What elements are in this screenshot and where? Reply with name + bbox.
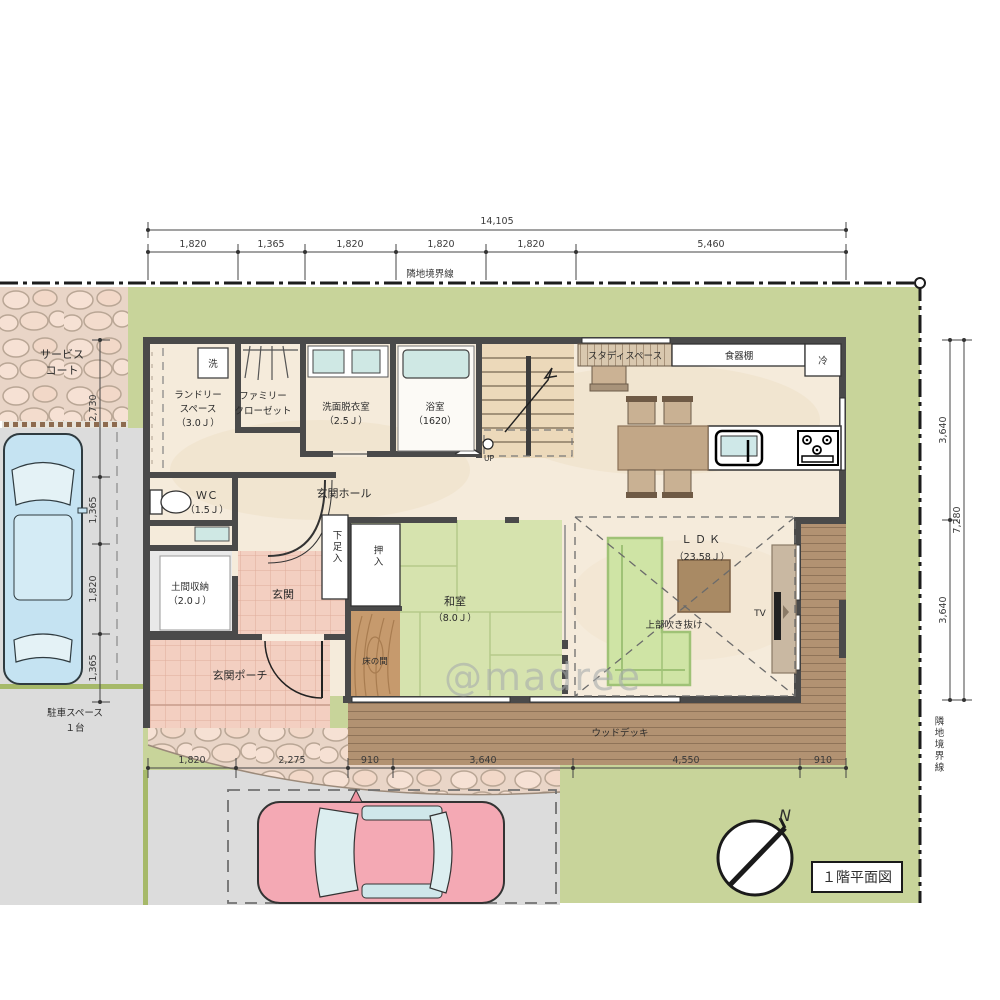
label-wc-1: ＷＣ bbox=[196, 489, 218, 502]
kitchen-sink bbox=[716, 431, 762, 465]
dim-top-total: 14,105 bbox=[480, 216, 513, 227]
label-parking-1: 駐車スペース bbox=[47, 707, 103, 719]
label-washroom-2: （2.5Ｊ） bbox=[324, 415, 368, 427]
wall-north bbox=[143, 337, 846, 344]
label-oshiire: 押入 bbox=[372, 544, 384, 568]
label-washitsu-2: （8.0Ｊ） bbox=[433, 612, 477, 624]
label-tokonoma: 床の間 bbox=[362, 656, 388, 667]
car-blue bbox=[4, 434, 87, 684]
deck-wall-stub bbox=[839, 600, 846, 658]
floor-plan-drawing: 隣地境界線 隣地境界線 14,105 1,820 1,365 1,820 1,8… bbox=[0, 0, 1000, 1000]
wall-porch-top bbox=[143, 634, 268, 640]
dim-left-2: 1,365 bbox=[88, 496, 99, 523]
stair-start-marker bbox=[483, 439, 493, 449]
label-laundry-1: ランドリー bbox=[174, 390, 222, 401]
watermark: @madree bbox=[444, 655, 642, 699]
label-ldk-2: （23.58Ｊ） bbox=[674, 551, 730, 563]
label-hall: 玄関ホール bbox=[317, 486, 372, 500]
bathtub bbox=[403, 350, 469, 378]
doma-shelf bbox=[160, 556, 230, 630]
floor-plan-page: 隣地境界線 隣地境界線 14,105 1,820 1,365 1,820 1,8… bbox=[0, 0, 1000, 1000]
label-fridge: 冷 bbox=[818, 355, 828, 367]
label-bath-1: 浴室 bbox=[425, 401, 444, 413]
label-washroom-1: 洗面脱衣室 bbox=[322, 401, 370, 413]
tv-label: TV bbox=[753, 609, 766, 619]
dim-top-5: 1,820 bbox=[517, 239, 544, 250]
kitchen-stove bbox=[798, 431, 838, 465]
dim-left-4: 1,365 bbox=[88, 654, 99, 681]
dim-right-2: 3,640 bbox=[938, 596, 949, 623]
dims-top bbox=[146, 222, 848, 280]
living-table bbox=[678, 560, 730, 612]
label-shoes: 下足入 bbox=[331, 530, 343, 565]
label-porch: 玄関ポーチ bbox=[213, 668, 268, 682]
tv-screen bbox=[774, 592, 781, 640]
label-doma-1: 土間収納 bbox=[171, 581, 209, 593]
lawn-edge-v bbox=[143, 770, 148, 905]
dim-left-3: 1,820 bbox=[88, 575, 99, 602]
title-box: １階平面図 bbox=[812, 862, 902, 892]
boundary-top-label: 隣地境界線 bbox=[406, 268, 454, 280]
label-deck: ウッドデッキ bbox=[591, 727, 648, 739]
dim-top-3: 1,820 bbox=[336, 239, 363, 250]
plan-title: １階平面図 bbox=[822, 870, 892, 886]
label-study: スタディスペース bbox=[588, 350, 662, 362]
label-ldk-1: ＬＤＫ bbox=[681, 533, 723, 546]
dim-right-total: 7,280 bbox=[952, 506, 963, 533]
boundary-corner-marker bbox=[915, 278, 925, 288]
court-edge-dots bbox=[2, 421, 128, 428]
label-doma-2: （2.0Ｊ） bbox=[168, 595, 212, 607]
label-service-court-1: サービス bbox=[40, 348, 84, 361]
dim-top-2: 1,365 bbox=[257, 239, 284, 250]
label-bath-2: （1620） bbox=[413, 415, 456, 427]
wall-west bbox=[143, 337, 150, 728]
label-closet-2: クローゼット bbox=[234, 405, 291, 417]
label-closet-1: ファミリー bbox=[239, 391, 287, 402]
dim-bottom-2: 2,275 bbox=[278, 755, 305, 766]
label-parking-2: １台 bbox=[65, 722, 84, 734]
dim-top-1: 1,820 bbox=[179, 239, 206, 250]
label-laundry-2: スペース bbox=[180, 404, 217, 415]
dim-bottom-5: 4,550 bbox=[672, 755, 699, 766]
wc-window bbox=[195, 527, 229, 541]
dim-bottom-4: 3,640 bbox=[469, 755, 496, 766]
vanity-sink-1 bbox=[313, 350, 344, 373]
washer-label: 洗 bbox=[208, 358, 218, 370]
label-wc-2: （1.5Ｊ） bbox=[185, 504, 229, 516]
wall-step bbox=[798, 517, 846, 524]
tv-board bbox=[772, 545, 796, 673]
label-laundry-3: （3.0Ｊ） bbox=[176, 417, 220, 429]
boundary-right-label: 隣地境界線 bbox=[933, 716, 945, 774]
label-genkan: 玄関 bbox=[272, 587, 294, 601]
stair-up-label: UP bbox=[484, 454, 494, 463]
label-service-court-2: コート bbox=[46, 364, 79, 377]
dim-left-1: 2,730 bbox=[88, 394, 99, 421]
porch-tile bbox=[150, 640, 330, 728]
label-cupboard: 食器棚 bbox=[725, 350, 754, 362]
dim-top-6: 5,460 bbox=[697, 239, 724, 250]
dim-bottom-3: 910 bbox=[361, 755, 379, 766]
dim-top-4: 1,820 bbox=[427, 239, 454, 250]
study-chair bbox=[590, 366, 628, 391]
dim-bottom-1: 1,820 bbox=[178, 755, 205, 766]
label-void: 上部吹き抜け bbox=[645, 619, 702, 631]
stairs: UP bbox=[482, 344, 574, 463]
compass-north-label: N bbox=[779, 806, 791, 825]
car-pink bbox=[258, 790, 504, 903]
dim-bottom-6: 910 bbox=[814, 755, 832, 766]
vanity-sink-2 bbox=[352, 350, 380, 373]
dim-right-1: 3,640 bbox=[938, 416, 949, 443]
label-washitsu-1: 和室 bbox=[444, 594, 466, 608]
